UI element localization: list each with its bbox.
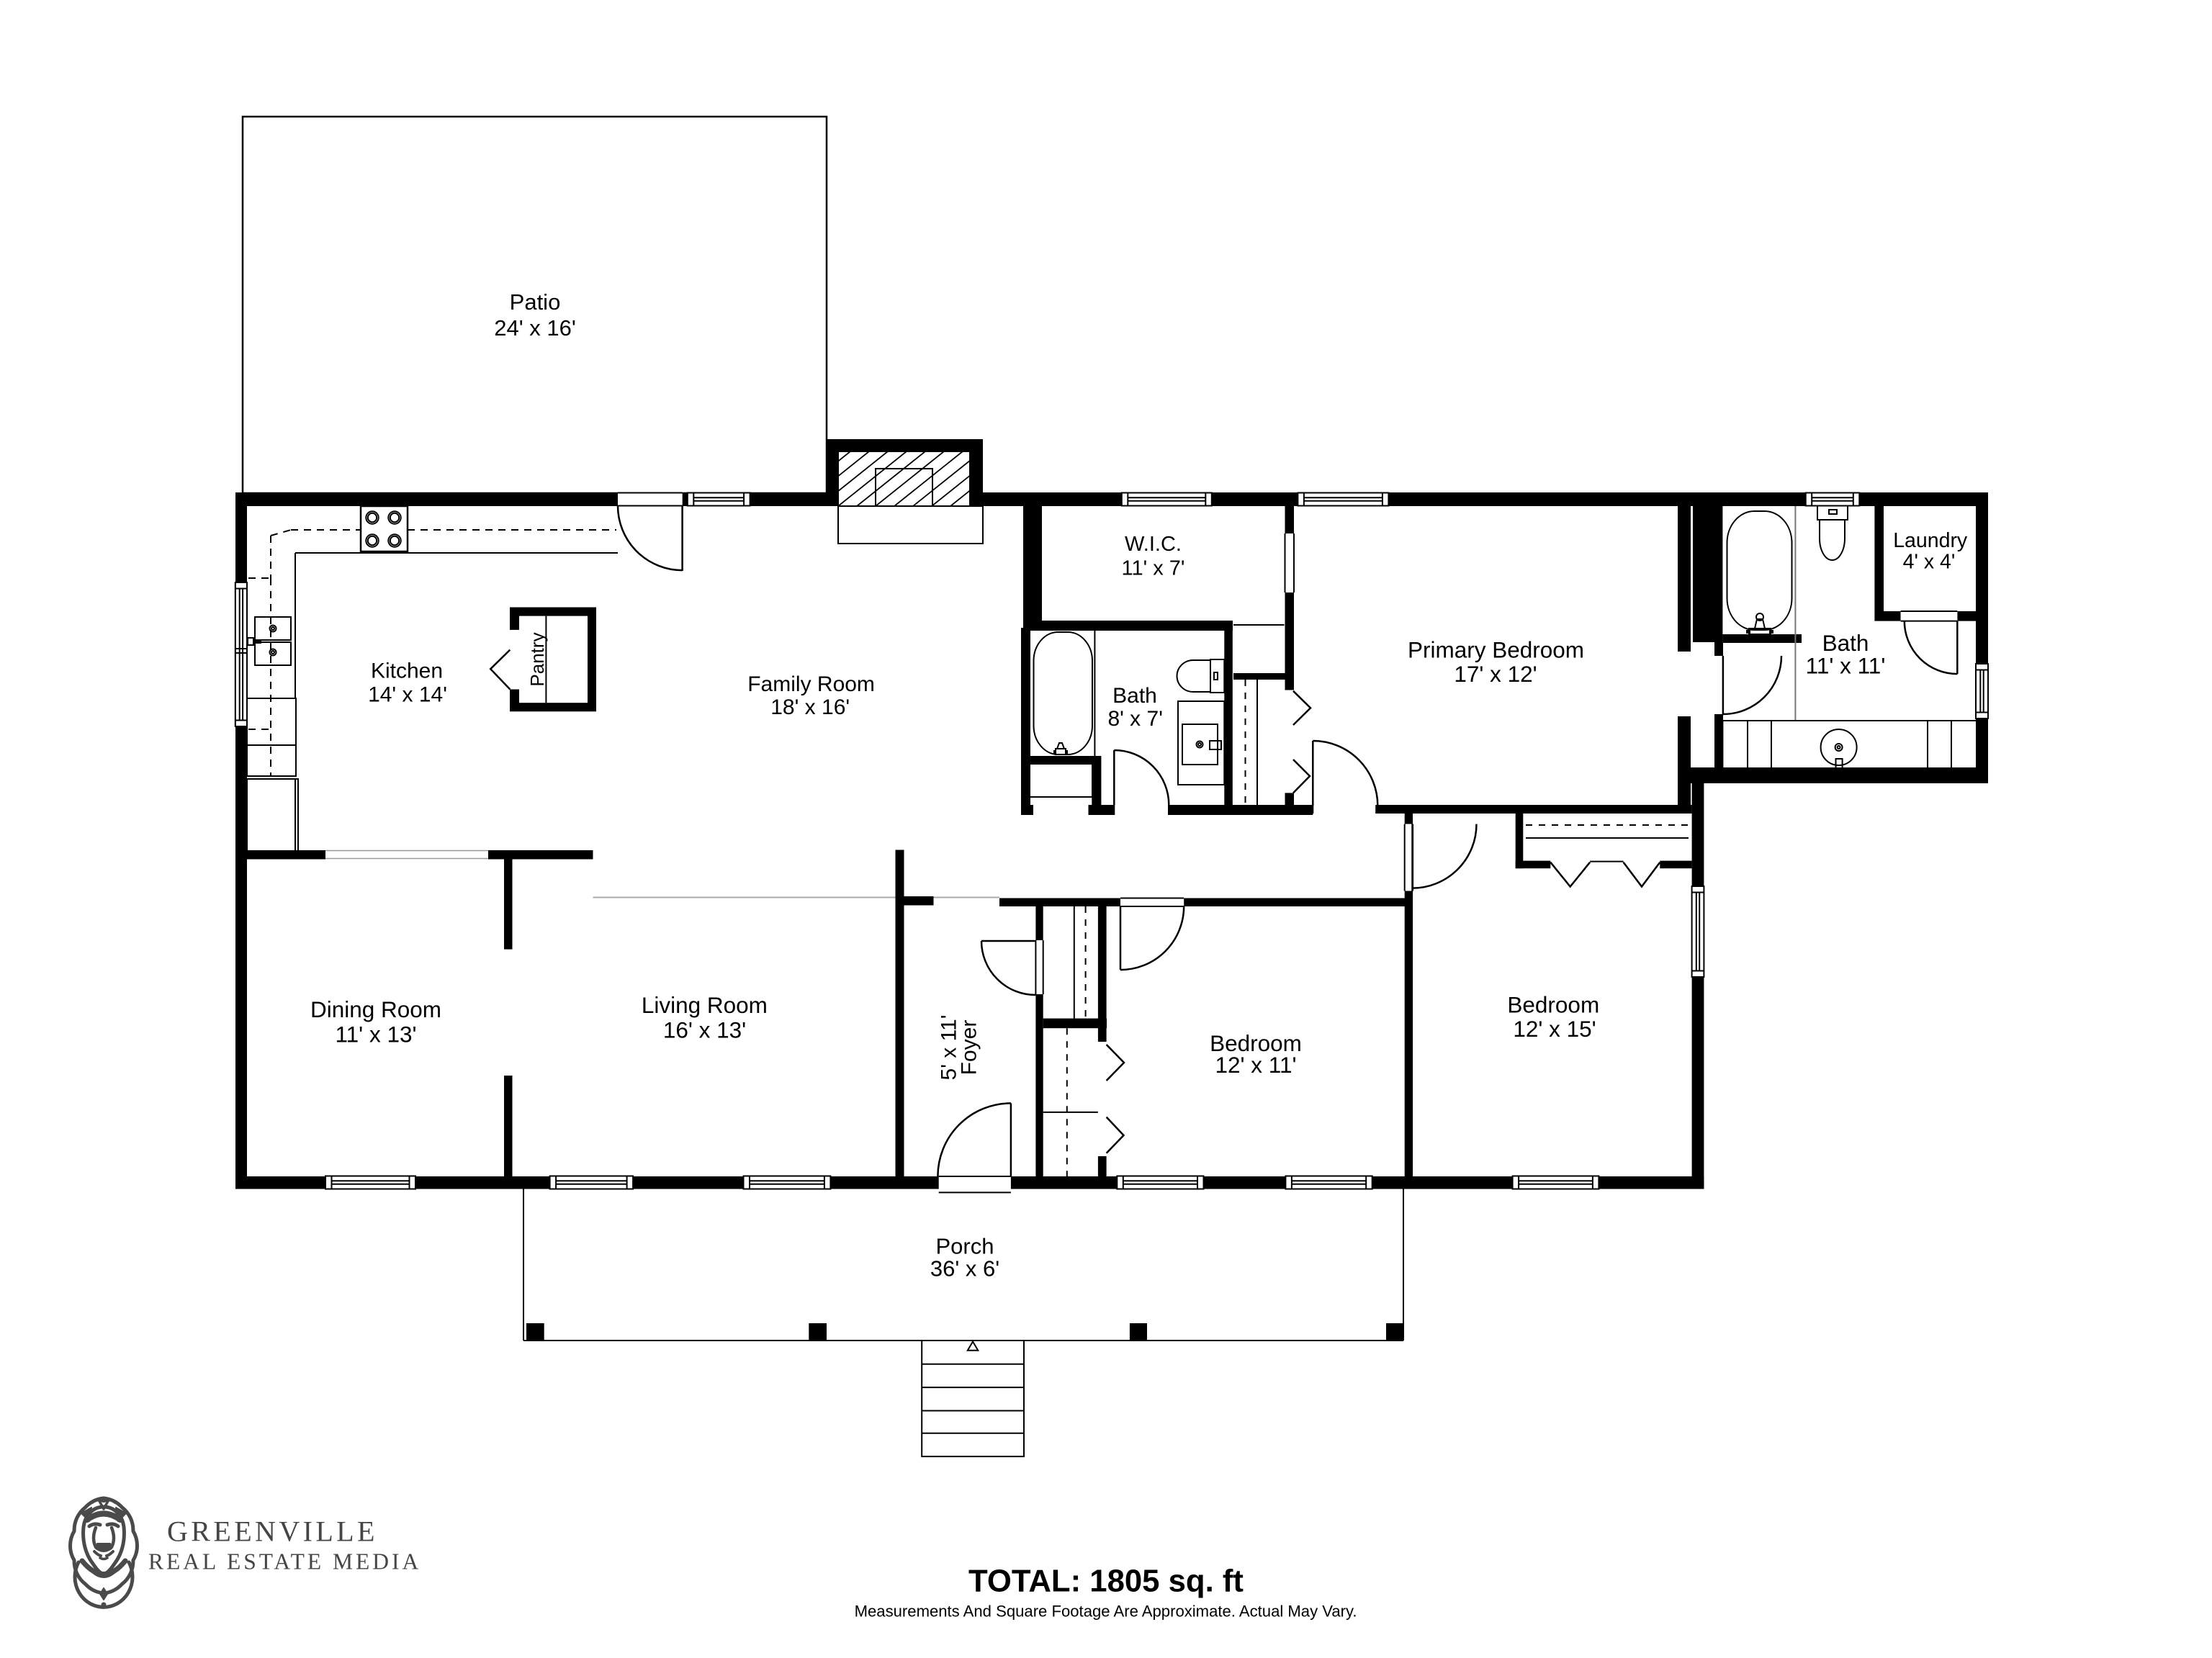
svg-text:Bedroom: Bedroom	[1507, 991, 1599, 1017]
svg-text:12' x 11': 12' x 11'	[1215, 1052, 1296, 1078]
svg-text:8' x 7': 8' x 7'	[1107, 707, 1163, 731]
svg-text:17' x 12': 17' x 12'	[1454, 661, 1537, 687]
svg-text:36' x 6': 36' x 6'	[930, 1256, 999, 1281]
svg-text:Primary Bedroom: Primary Bedroom	[1408, 637, 1584, 663]
svg-text:TOTAL: 1805 sq. ft: TOTAL: 1805 sq. ft	[968, 1564, 1244, 1599]
svg-text:5' x 11': 5' x 11'	[938, 1015, 961, 1081]
svg-text:16' x 13': 16' x 13'	[663, 1017, 746, 1043]
svg-text:14' x 14': 14' x 14'	[368, 683, 447, 707]
svg-text:18' x 16': 18' x 16'	[770, 695, 850, 719]
svg-text:Pantry: Pantry	[526, 632, 548, 686]
svg-text:Porch: Porch	[936, 1234, 994, 1259]
svg-text:Bath: Bath	[1112, 684, 1157, 708]
svg-text:24' x 16': 24' x 16'	[494, 315, 576, 341]
svg-text:Living Room: Living Room	[642, 992, 768, 1018]
svg-text:Measurements And Square Footag: Measurements And Square Footage Are Appr…	[855, 1603, 1357, 1621]
svg-text:Laundry: Laundry	[1893, 529, 1968, 552]
svg-text:12' x 15': 12' x 15'	[1513, 1016, 1596, 1042]
svg-text:W.I.C.: W.I.C.	[1125, 533, 1182, 556]
svg-text:GREENVILLE: GREENVILLE	[167, 1515, 378, 1548]
svg-text:REAL ESTATE MEDIA: REAL ESTATE MEDIA	[148, 1549, 421, 1574]
svg-text:11' x 13': 11' x 13'	[335, 1022, 416, 1047]
svg-text:11' x 7': 11' x 7'	[1122, 557, 1185, 580]
svg-text:Dining Room: Dining Room	[310, 996, 441, 1022]
svg-text:4' x 4': 4' x 4'	[1903, 551, 1956, 574]
svg-text:Kitchen: Kitchen	[371, 659, 443, 683]
svg-text:Patio: Patio	[510, 289, 561, 315]
svg-text:Family Room: Family Room	[747, 672, 875, 696]
svg-text:11' x 11': 11' x 11'	[1806, 652, 1886, 678]
